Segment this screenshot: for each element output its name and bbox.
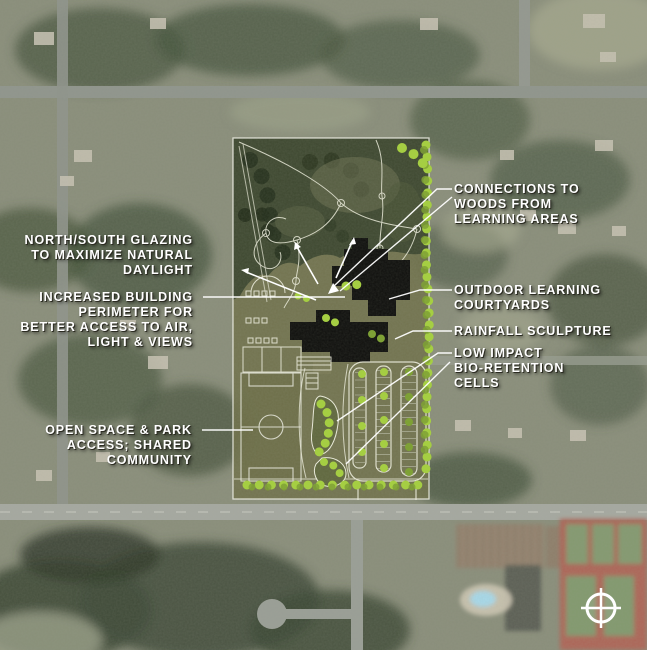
annotation-connections-to-woods: CONNECTIONS TO WOODS FROM LEARNING AREAS [454,182,580,227]
annotation-outdoor-courtyards: OUTDOOR LEARNING COURTYARDS [454,283,601,313]
annotation-north-south-glazing: NORTH/SOUTH GLAZING TO MAXIMIZE NATURAL … [25,233,193,278]
annotation-open-space: OPEN SPACE & PARK ACCESS; SHARED COMMUNI… [45,423,192,468]
annotation-rainfall-sculpture: RAINFALL SCULPTURE [454,324,612,339]
annotation-increased-perimeter: INCREASED BUILDING PERIMETER FOR BETTER … [20,290,193,350]
annotation-bio-retention: LOW IMPACT BIO-RETENTION CELLS [454,346,564,391]
site-plan-diagram: CONNECTIONS TO WOODS FROM LEARNING AREAS… [0,0,647,650]
